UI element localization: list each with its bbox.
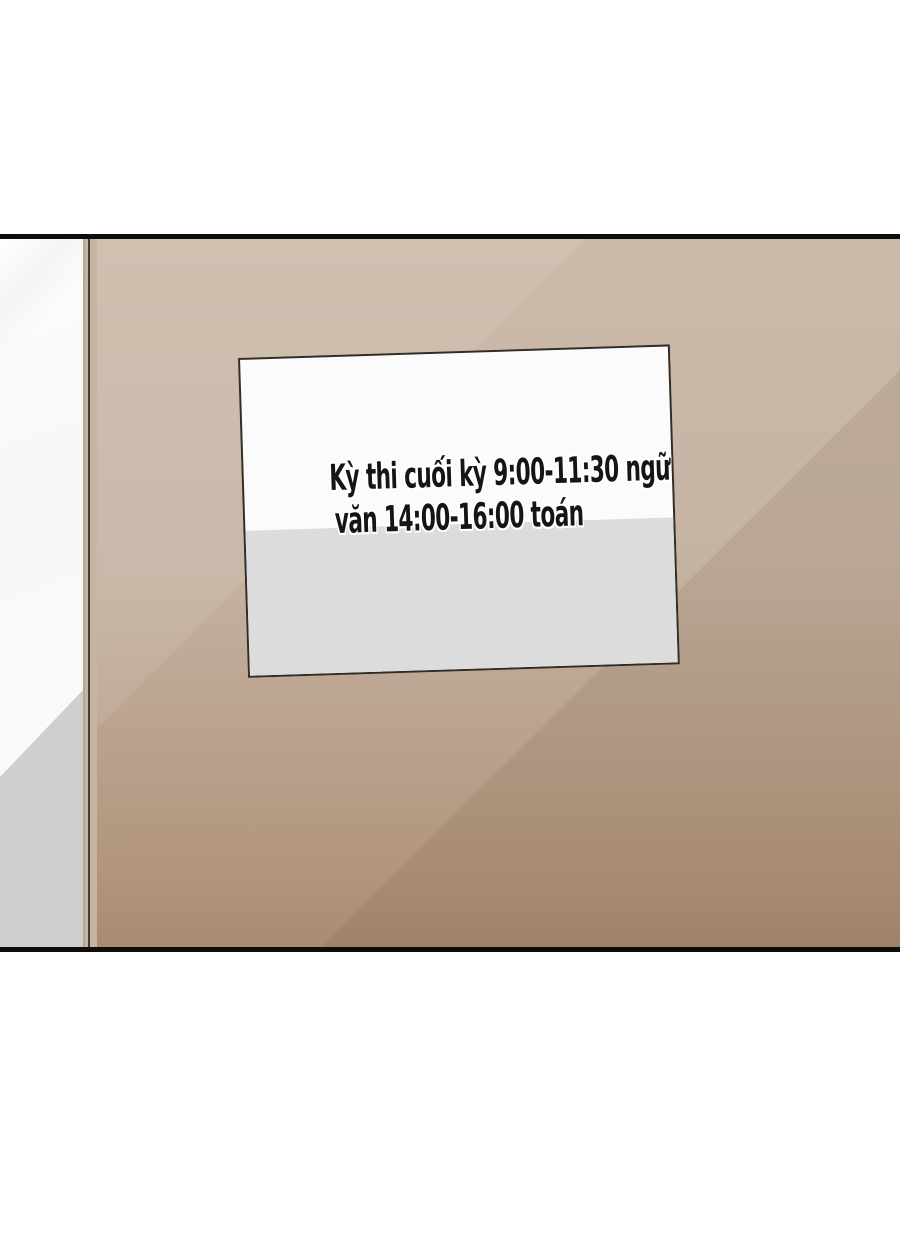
comic-panel: Kỳ thi cuối kỳ 9:00-11:30 ngữ văn 14:00-… xyxy=(0,234,900,952)
notice-text: Kỳ thi cuối kỳ 9:00-11:30 ngữ văn 14:00-… xyxy=(243,446,673,545)
page-background: Kỳ thi cuối kỳ 9:00-11:30 ngữ văn 14:00-… xyxy=(0,0,900,1257)
notice-paper: Kỳ thi cuối kỳ 9:00-11:30 ngữ văn 14:00-… xyxy=(238,344,680,677)
wall: Kỳ thi cuối kỳ 9:00-11:30 ngữ văn 14:00-… xyxy=(97,239,900,947)
notice-text-line-2: văn 14:00-16:00 toán xyxy=(330,492,588,543)
door-edge-gloss xyxy=(0,239,83,947)
door-edge-strip xyxy=(0,239,83,947)
door-frame-line xyxy=(83,239,97,947)
